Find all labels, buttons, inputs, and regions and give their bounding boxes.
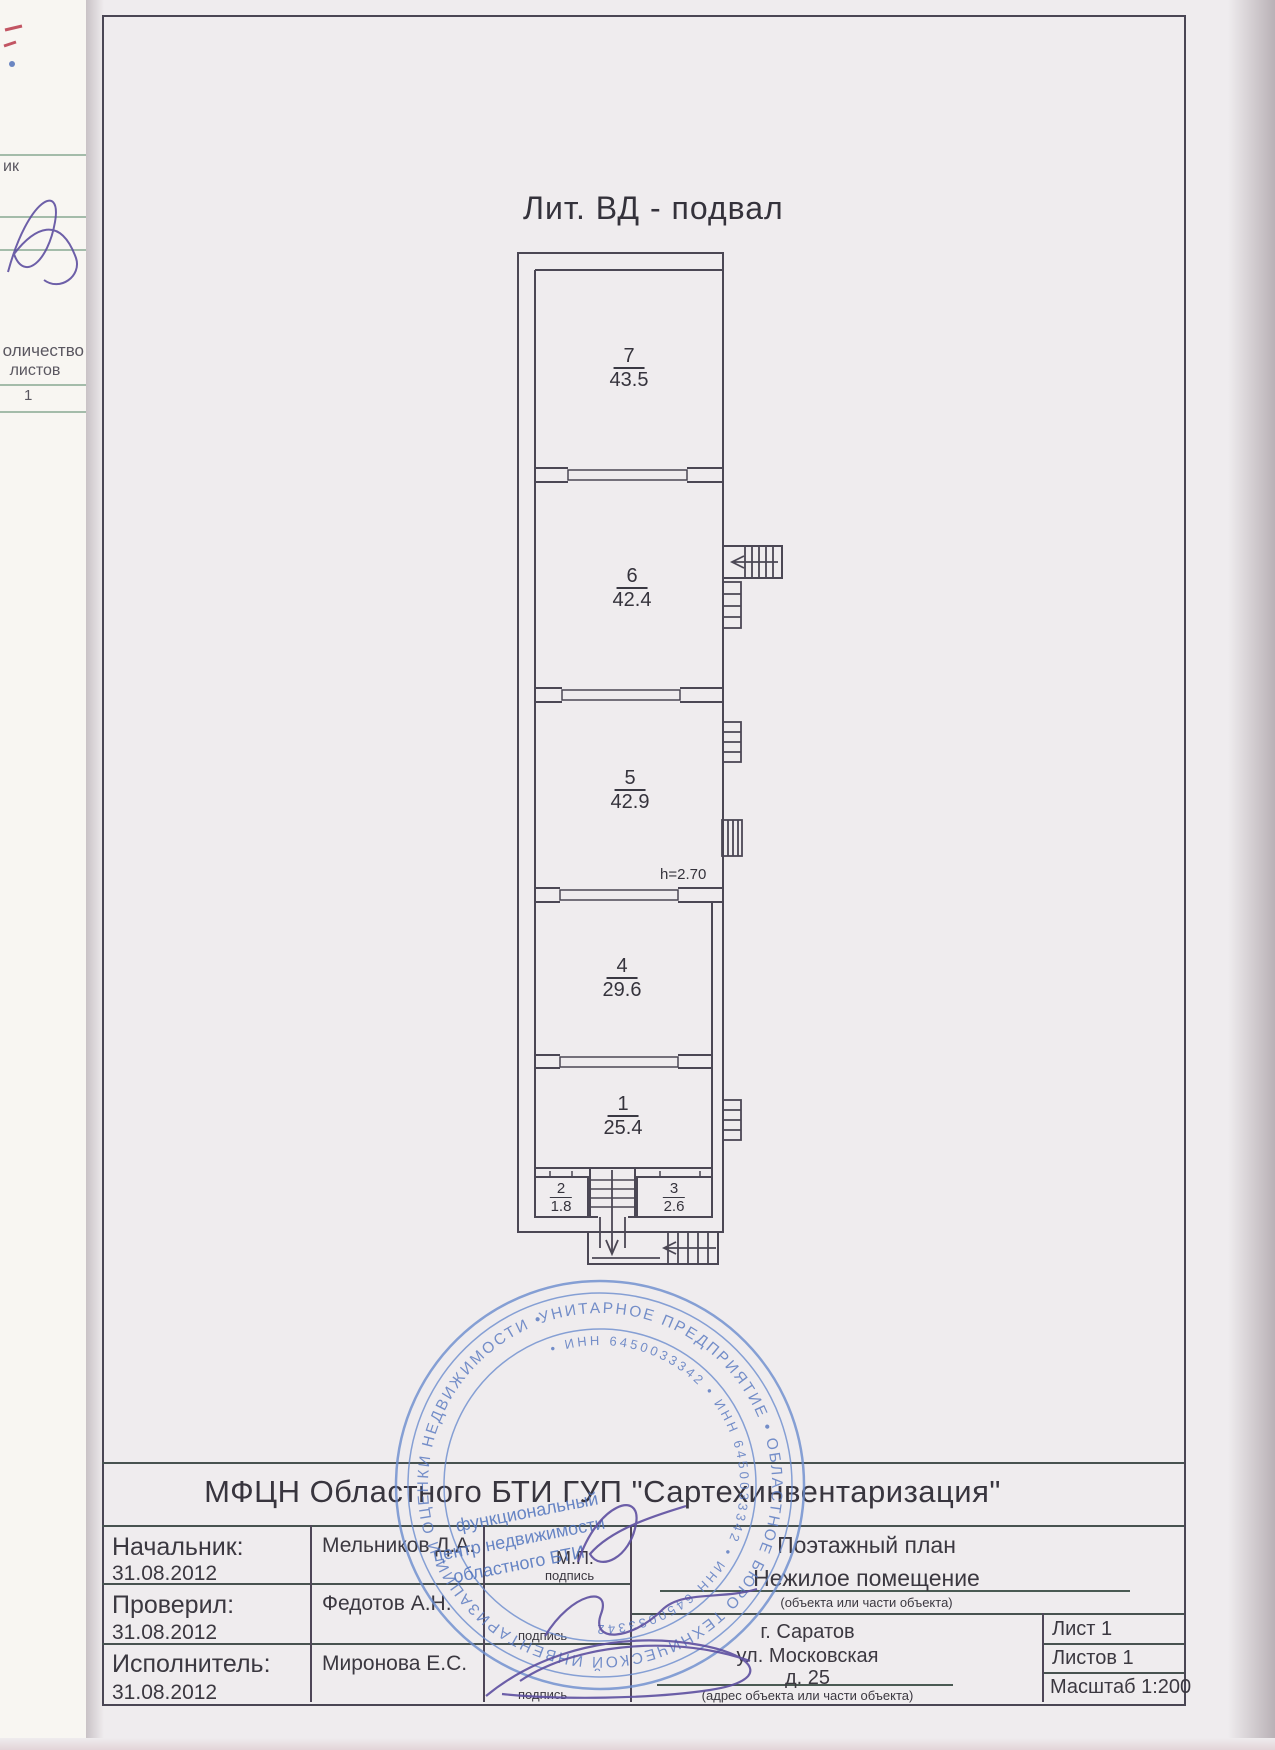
role-label: Начальник: — [112, 1533, 244, 1562]
divider-line — [1042, 1672, 1184, 1674]
signature-caption: подпись — [518, 1628, 567, 1643]
ceiling-height-note: h=2.70 — [660, 866, 706, 883]
organization-title: МФЦН Областного БТИ ГУП "Сартехинвентари… — [102, 1474, 1103, 1510]
divider-line — [102, 1525, 1184, 1527]
room-number: 4 — [606, 956, 637, 979]
divider-line — [1042, 1643, 1184, 1645]
room-number: 2 — [550, 1181, 572, 1198]
sheet-number: Лист 1 — [1052, 1618, 1112, 1641]
rule-line — [0, 411, 86, 413]
address-city: г. Саратов — [630, 1620, 985, 1644]
document-subtype: Нежилое помещение — [630, 1565, 1103, 1592]
count-label: оличество — [0, 341, 84, 361]
address-building: д. 25 — [630, 1666, 985, 1690]
divider-line — [483, 1525, 485, 1702]
room-label: 4 29.6 — [603, 956, 642, 1001]
room-label: 1 25.4 — [604, 1094, 643, 1139]
left-page-sliver: ик оличество листов 1 — [0, 0, 86, 1750]
room-number: 5 — [614, 768, 645, 791]
room-number: 7 — [613, 346, 644, 369]
date-value: 31.08.2012 — [112, 1621, 217, 1645]
role-label: Проверил: — [112, 1591, 234, 1620]
divider-line — [310, 1525, 312, 1702]
divider-line — [102, 1462, 1184, 1464]
scan-edge-band — [1228, 0, 1275, 1750]
room-number: 1 — [607, 1094, 638, 1117]
signature-caption: подпись — [545, 1568, 594, 1583]
room-label: 7 43.5 — [610, 346, 649, 391]
room-label: 5 42.9 — [611, 768, 650, 813]
divider-line — [1042, 1613, 1044, 1702]
room-label: 2 1.8 — [550, 1180, 572, 1215]
date-value: 31.08.2012 — [112, 1562, 217, 1586]
plan-title: Лит. ВД - подвал — [523, 190, 784, 227]
person-name: Федотов А.Н. — [322, 1592, 452, 1616]
rule-line — [0, 216, 86, 218]
address-note: (адрес объекта или части объекта) — [630, 1688, 985, 1703]
count-label: листов — [0, 362, 70, 380]
room-label: 6 42.4 — [613, 566, 652, 611]
rule-line — [0, 384, 86, 386]
scan-edge-band — [0, 1738, 1275, 1750]
sheets-total: Листов 1 — [1052, 1647, 1134, 1670]
address-street: ул. Московская — [630, 1644, 985, 1668]
room-area: 25.4 — [604, 1117, 643, 1139]
room-area: 29.6 — [603, 979, 642, 1001]
person-name: Мельников Д.А. — [322, 1534, 475, 1558]
scale-value: Масштаб 1:200 — [1050, 1676, 1191, 1699]
mp-seal-label: М.П. — [556, 1548, 594, 1569]
person-name: Миронова Е.С. — [322, 1652, 467, 1676]
room-area: 42.9 — [611, 791, 650, 813]
room-number: 6 — [616, 566, 647, 589]
room-area: 43.5 — [610, 369, 649, 391]
divider-line — [630, 1613, 1184, 1615]
room-area: 1.8 — [550, 1198, 572, 1215]
scanned-floorplan-sheet: { "left_margin": { "fragment1": "ик", "c… — [0, 0, 1275, 1750]
object-note: (объекта или части объекта) — [630, 1595, 1103, 1610]
role-label: Исполнитель: — [112, 1650, 271, 1679]
document-type: Поэтажный план — [630, 1532, 1103, 1559]
room-label: 3 2.6 — [663, 1180, 685, 1215]
date-value: 31.08.2012 — [112, 1681, 217, 1705]
page-frame — [102, 15, 1186, 1706]
signature-caption: подпись — [518, 1687, 567, 1702]
rule-line — [0, 154, 86, 156]
room-number: 3 — [663, 1181, 685, 1198]
room-area: 42.4 — [613, 589, 652, 611]
text-fragment: ик — [3, 158, 19, 176]
rule-line — [0, 249, 86, 251]
room-area: 2.6 — [663, 1198, 685, 1215]
sheet-count-value: 1 — [24, 387, 32, 404]
